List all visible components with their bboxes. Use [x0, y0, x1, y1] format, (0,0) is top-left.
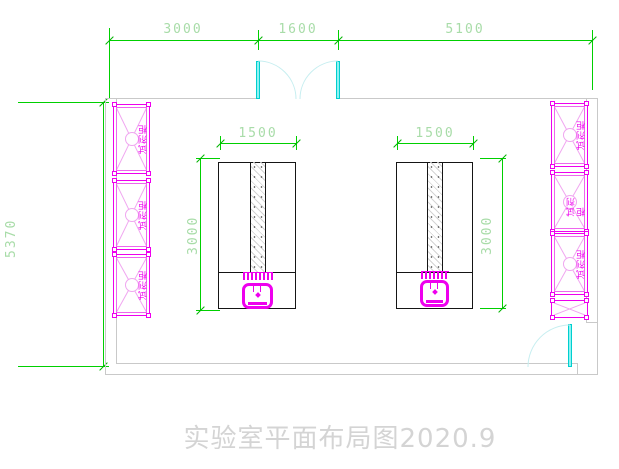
cabinet-knob-icon — [563, 128, 577, 142]
drainer-rack-icon — [243, 272, 273, 280]
wall-bottom-inner — [116, 363, 577, 364]
cabinet-corner — [112, 102, 117, 107]
sink-icon — [420, 280, 449, 307]
reagent-cabinet: 试剂柜 — [113, 104, 150, 174]
wall-bottom-door-jamb — [577, 363, 578, 375]
dim-label-bench-right-height: 3000 — [480, 204, 495, 266]
door-leaf-side — [568, 324, 572, 367]
reagent-cabinet: 试剂柜 — [551, 172, 588, 232]
dim-label-bench-left-width: 1500 — [223, 126, 293, 141]
cabinet-corner — [584, 292, 589, 297]
cabinet-corner — [112, 178, 117, 183]
cabinet-knob-icon — [125, 132, 139, 146]
tap-icon — [253, 286, 254, 292]
cabinet-corner — [112, 171, 117, 176]
cabinet-corner — [584, 170, 589, 175]
cabinet-knob-icon — [563, 257, 577, 271]
dim-label-bench-left-height: 3000 — [186, 204, 201, 266]
tap-icon — [437, 283, 438, 289]
cabinet-label: 试剂柜 — [139, 124, 149, 154]
door-swing-arcs — [0, 0, 619, 469]
dim-label-left-total: 5370 — [4, 203, 19, 273]
cabinet-corner — [112, 313, 117, 318]
dim-label-top-right: 5100 — [430, 22, 500, 37]
reagent-cabinet: 试剂柜 — [551, 233, 588, 295]
cabinet-corner — [112, 252, 117, 257]
dim-label-bench-right-width: 1500 — [400, 126, 470, 141]
cabinet-label: 试剂柜 — [577, 120, 587, 150]
cabinet-label: 试剂柜 — [577, 249, 587, 279]
cabinet-corner — [550, 231, 555, 236]
drain-icon — [255, 292, 261, 298]
wall-top-right-segment — [338, 98, 597, 99]
cabinet-corner — [146, 102, 151, 107]
cabinet-corner — [146, 171, 151, 176]
cabinet-knob-icon — [125, 208, 139, 222]
dim-line-bench-right-height — [502, 158, 503, 308]
dim-line-bench-right-width — [397, 143, 473, 144]
floorplan-canvas: 3000 1600 5100 5370 试剂柜 试剂柜 — [0, 0, 619, 469]
cabinet-corner — [550, 164, 555, 169]
reagent-cabinet: 试剂柜 — [113, 180, 150, 250]
cabinet-label: 试剂柜 — [139, 270, 149, 300]
wall-right-outer — [597, 98, 598, 375]
wall-bottom-outer — [105, 374, 597, 375]
cabinet-corner — [146, 178, 151, 183]
cabinet-label: 试剂柜 — [139, 200, 149, 230]
door-swing-arc-left — [258, 61, 296, 99]
drawing-title: 实验室平面布局图2020.9 — [150, 418, 530, 455]
wall-top-left-segment — [105, 98, 258, 99]
cabinet-knob-icon — [125, 278, 139, 292]
cabinet-corner — [584, 164, 589, 169]
door-leaf-entrance-left — [256, 61, 260, 99]
door-leaf-entrance-right — [336, 61, 340, 99]
dim-label-top-middle: 1600 — [263, 22, 333, 37]
dim-line-left — [103, 102, 104, 367]
drainer-rack-icon — [421, 271, 449, 279]
dim-ext-left-top — [18, 102, 109, 103]
cabinet-label: 试剂柜 — [567, 188, 587, 217]
sink-icon — [242, 283, 273, 309]
bench-service-spine-left — [250, 162, 266, 272]
cabinet-cross-icon — [554, 303, 585, 315]
dim-ext-left-bottom — [18, 366, 109, 367]
drain-icon — [432, 290, 438, 296]
small-cabinet — [551, 300, 588, 318]
reagent-cabinet: 试剂柜 — [113, 254, 150, 316]
cabinet-corner — [584, 231, 589, 236]
bench-service-spine-right — [427, 162, 443, 272]
cabinet-corner — [146, 313, 151, 318]
sink-edge — [248, 302, 267, 305]
wall-right-door-jamb — [586, 322, 597, 323]
dim-line-bench-left-width — [220, 143, 296, 144]
reagent-cabinet: 试剂柜 — [551, 103, 588, 167]
cabinet-corner — [550, 292, 555, 297]
cabinet-corner — [550, 101, 555, 106]
cabinet-corner — [584, 298, 589, 303]
cabinet-corner — [146, 252, 151, 257]
cabinet-corner — [550, 315, 555, 320]
cabinet-corner — [550, 298, 555, 303]
dim-line-top — [109, 40, 592, 41]
sink-edge — [426, 300, 443, 303]
door-swing-arc-right — [300, 61, 338, 99]
cabinet-corner — [584, 315, 589, 320]
cabinet-corner — [584, 101, 589, 106]
tap-icon — [260, 286, 261, 292]
cabinet-corner — [550, 170, 555, 175]
door-swing-arc-side — [528, 325, 570, 367]
wall-left-outer — [105, 98, 106, 375]
dim-label-top-left: 3000 — [148, 22, 218, 37]
tap-icon — [430, 283, 431, 289]
